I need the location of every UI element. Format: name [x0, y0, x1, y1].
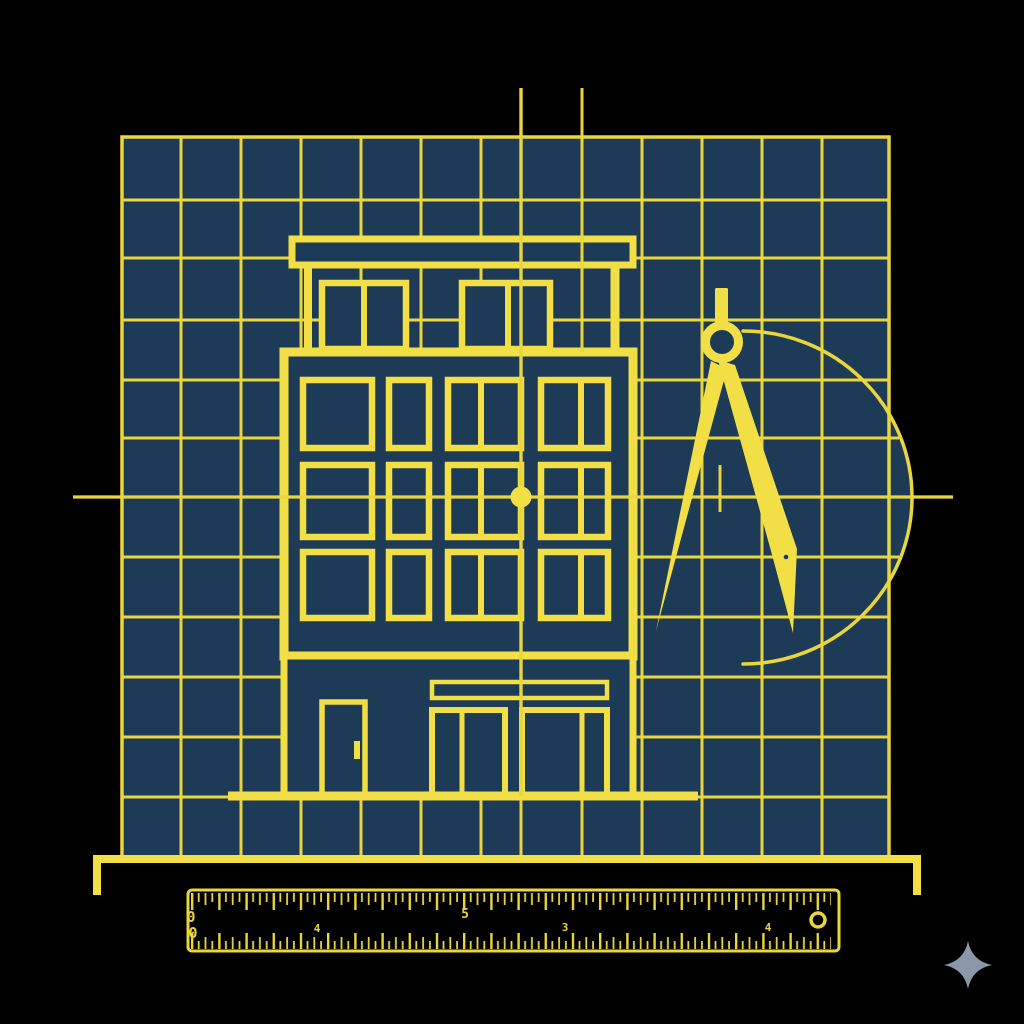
ruler-label: 3	[562, 921, 569, 934]
compass-screw-hole	[784, 555, 789, 560]
window-r2-c3	[448, 465, 521, 537]
window-r2-c1	[303, 465, 372, 537]
window-r2-c4	[541, 465, 608, 537]
sparkle-icon	[944, 941, 992, 989]
ruler-label: 0	[188, 924, 197, 942]
storefront-window-right	[522, 710, 607, 796]
ruler-label: 4	[765, 921, 772, 934]
window-r3-c3	[448, 552, 521, 618]
ruler-label: 4	[314, 922, 321, 935]
blueprint-canvas: 0 5 0 4 3 4	[0, 0, 1024, 1024]
ruler-label: 5	[461, 907, 469, 922]
window-r2-c2	[389, 465, 429, 537]
window-r1-c1	[303, 380, 372, 448]
center-point-dot	[511, 487, 532, 508]
ruler-top-scale	[191, 893, 831, 911]
blueprint-illustration: 0 5 0 4 3 4	[0, 0, 1024, 1024]
window-r1-c4	[541, 380, 608, 448]
ruler-bottom-scale	[191, 933, 831, 949]
window-r3-c2	[389, 552, 429, 618]
ruler: 0 5 0 4 3 4	[186, 890, 839, 951]
window-r1-c2	[389, 380, 429, 448]
window-r3-c4	[541, 552, 608, 618]
door-handle-icon	[354, 741, 360, 759]
ruler-hole	[811, 913, 825, 927]
window-r1-c3	[448, 380, 521, 448]
window-r3-c1	[303, 552, 372, 618]
storefront-window-left	[432, 710, 505, 796]
